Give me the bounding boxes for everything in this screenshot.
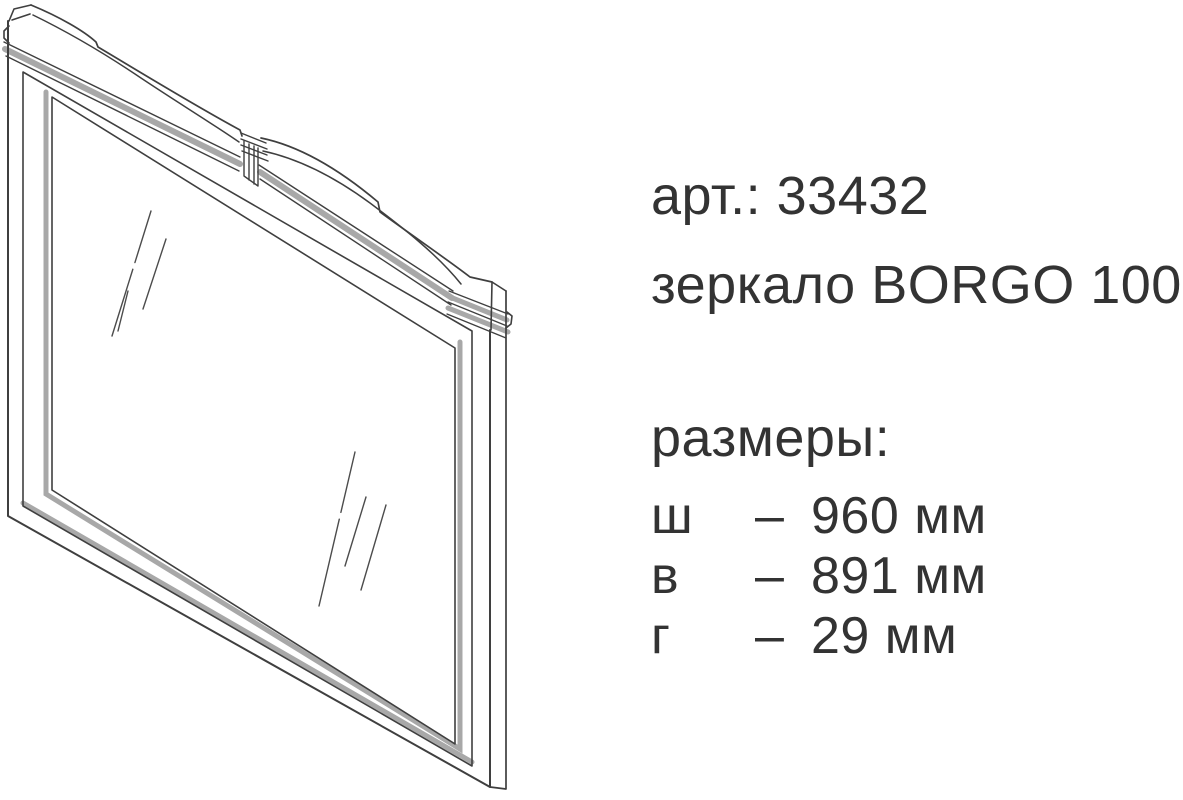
article-number: арт.: 33432: [651, 168, 1183, 224]
crest: [4, 5, 492, 305]
dimension-separator: –: [755, 606, 811, 666]
dimension-row-width: ш – 960 мм: [651, 486, 1183, 546]
dimension-value: 29 мм: [811, 606, 957, 666]
dimensions-heading: размеры:: [651, 410, 1183, 466]
dimension-row-depth: г – 29 мм: [651, 606, 1183, 666]
frame-outline: [8, 21, 506, 789]
product-title: зеркало BORGO 100: [651, 257, 1183, 313]
dimension-separator: –: [755, 486, 811, 546]
dimension-label: в: [651, 546, 755, 606]
product-info: арт.: 33432 зеркало BORGO 100 размеры: ш…: [651, 168, 1183, 666]
dimension-label: г: [651, 606, 755, 666]
product-spec-page: арт.: 33432 зеркало BORGO 100 размеры: ш…: [0, 0, 1183, 800]
dimension-value: 960 мм: [811, 486, 987, 546]
dimension-value: 891 мм: [811, 546, 987, 606]
dimension-separator: –: [755, 546, 811, 606]
glass-reflection-marks: [112, 211, 386, 606]
dimension-row-height: в – 891 мм: [651, 546, 1183, 606]
dimension-label: ш: [651, 486, 755, 546]
mirror-technical-drawing: [0, 0, 560, 800]
dimensions-list: ш – 960 мм в – 891 мм г – 29 мм: [651, 486, 1183, 666]
